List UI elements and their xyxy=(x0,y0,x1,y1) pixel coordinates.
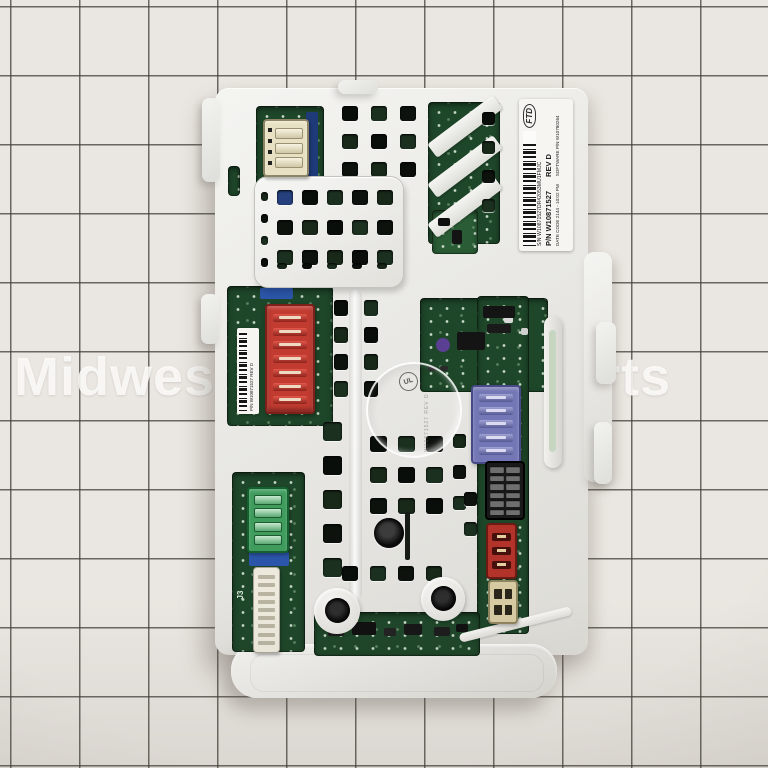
smd-component xyxy=(434,627,450,636)
serial-number-text: S/N W10871527DR42053MU1FMJC xyxy=(537,104,543,246)
vent-hole xyxy=(370,566,386,581)
vent-hole xyxy=(453,465,466,479)
barcode xyxy=(523,131,536,246)
vent-hole xyxy=(371,106,387,121)
connector-pin xyxy=(506,475,520,482)
vent-hole xyxy=(464,492,477,506)
part-number-text: P/N W10871527 xyxy=(544,191,553,246)
vent-hole xyxy=(398,467,415,483)
vent-hole xyxy=(426,467,443,483)
connector-slot xyxy=(492,533,511,541)
vent-hole xyxy=(323,490,342,509)
connector-slot xyxy=(479,447,513,455)
connector-slot xyxy=(494,589,512,599)
connector-slot xyxy=(258,641,275,645)
connector-slot xyxy=(254,522,282,532)
vent-hole xyxy=(364,327,378,343)
ic-chip xyxy=(483,306,515,318)
connector-slot xyxy=(258,600,275,604)
barcode-bar xyxy=(523,240,536,242)
connector-slot xyxy=(258,624,275,628)
barcode-bar xyxy=(523,228,536,230)
barcode-bar xyxy=(523,204,536,206)
barcode-bar xyxy=(239,398,247,399)
product-photo: Midwest Appliance Parts UL W10871527 REV xyxy=(0,0,768,768)
revision-text: REV D xyxy=(544,154,553,177)
vent-hole xyxy=(464,522,477,536)
connector-top-left-cream xyxy=(263,119,309,177)
barcode xyxy=(239,331,247,411)
molded-ridge xyxy=(349,290,362,600)
software-pn-text: SOFTWARE P/N W10780264 xyxy=(555,115,560,176)
vent-hole xyxy=(302,220,318,235)
vent-hole xyxy=(261,236,268,245)
barcode-bar xyxy=(239,376,247,379)
barcode-bar xyxy=(523,192,536,194)
barcode-bar xyxy=(239,374,247,375)
smd-component xyxy=(487,324,511,333)
connector-slot xyxy=(273,383,307,391)
barcode-bar xyxy=(239,393,247,395)
vent-hole xyxy=(364,354,378,370)
vent-hole xyxy=(334,354,348,370)
barcode-bar xyxy=(239,388,247,391)
connector-black-dual-row xyxy=(485,461,525,520)
barcode-bar xyxy=(523,245,536,246)
barcode-bar xyxy=(523,197,536,198)
smd-component xyxy=(456,624,468,632)
connector-slot xyxy=(254,495,282,505)
connector-pin xyxy=(506,500,520,507)
vent-hole xyxy=(352,220,368,235)
connector-slot xyxy=(492,561,511,569)
barcode-bar xyxy=(523,151,536,154)
vent-hole xyxy=(364,300,378,316)
connector-slot xyxy=(275,143,303,154)
vent-hole xyxy=(327,190,343,205)
barcode-bar xyxy=(239,364,247,367)
barcode-bar xyxy=(239,345,247,347)
flange-outline xyxy=(250,654,544,692)
vent-hole xyxy=(327,220,343,235)
barcode-bar xyxy=(239,340,247,343)
barcode-bar xyxy=(523,161,536,162)
connector-slot xyxy=(273,328,307,336)
vent-hole xyxy=(370,467,387,483)
vent-hole xyxy=(400,162,416,177)
mounting-clip xyxy=(594,422,612,484)
vent-hole xyxy=(453,434,466,448)
smd-component xyxy=(404,624,422,635)
connector-red-main xyxy=(265,304,315,414)
vent-hole xyxy=(323,524,342,543)
wire-channel-strip xyxy=(549,330,556,452)
smd-component xyxy=(452,230,462,244)
vent-hole xyxy=(327,263,337,269)
vent-hole xyxy=(371,134,387,149)
blue-component xyxy=(260,288,293,299)
barcode-bar xyxy=(523,144,536,146)
ic-chip xyxy=(457,332,485,350)
vent-hole xyxy=(261,258,268,267)
barcode-bar xyxy=(523,163,536,166)
barcode-bar xyxy=(239,350,247,351)
connector-slot xyxy=(273,369,307,377)
vent-hole xyxy=(302,190,318,205)
vent-hole xyxy=(482,112,495,125)
connector-slot xyxy=(258,616,275,620)
connector-pin xyxy=(490,466,504,473)
connector-slot xyxy=(479,420,513,428)
barcode-bar xyxy=(523,149,536,150)
connector-slot xyxy=(258,575,275,579)
smd-component xyxy=(521,328,528,335)
vent-hole xyxy=(398,566,414,581)
screw-hole xyxy=(325,598,350,623)
vent-hole xyxy=(482,141,495,154)
barcode-bar xyxy=(523,199,536,202)
vent-hole xyxy=(377,220,393,235)
vent-hole xyxy=(342,162,358,177)
pcb-label-text: P/N W10871527 REV D xyxy=(249,331,254,411)
connector-slot xyxy=(258,608,275,612)
barcode-bar xyxy=(239,352,247,355)
mounting-clip xyxy=(596,322,616,384)
barcode-bar xyxy=(239,405,247,407)
vent-hole xyxy=(400,134,416,149)
vent-hole xyxy=(302,263,312,269)
connector-slot xyxy=(275,157,303,168)
connector-pin xyxy=(490,500,504,507)
vent-hole xyxy=(323,422,342,441)
connector-slot xyxy=(258,592,275,596)
vent-hole xyxy=(261,192,268,201)
vent-hole xyxy=(482,170,495,183)
connector-slot xyxy=(479,434,513,442)
connector-slot xyxy=(494,605,512,615)
barcode-bar xyxy=(239,400,247,403)
vent-hole xyxy=(400,106,416,121)
connector-pin xyxy=(506,509,520,516)
vent-hole xyxy=(371,162,387,177)
vent-hole xyxy=(334,381,348,397)
barcode-bar xyxy=(523,223,536,226)
barcode-bar xyxy=(523,211,536,214)
silkscreen-j3: J3 xyxy=(229,588,251,602)
vent-hole xyxy=(261,214,268,223)
vent-hole xyxy=(342,134,358,149)
connector-tan-small xyxy=(488,580,518,624)
mounting-tab xyxy=(201,294,219,344)
connector-purple xyxy=(471,385,521,464)
vent-hole xyxy=(342,566,358,581)
barcode-bar xyxy=(239,362,247,363)
vent-hole xyxy=(323,558,342,577)
connector-slot xyxy=(479,394,513,402)
barcode-bar xyxy=(523,235,536,238)
blue-component xyxy=(249,552,289,566)
barcode-bar xyxy=(523,185,536,186)
connector-slot xyxy=(275,128,303,139)
barcode-bar xyxy=(239,338,247,339)
vent-slot xyxy=(405,512,410,560)
connector-slot xyxy=(273,341,307,349)
barcode-bar xyxy=(239,333,247,335)
vent-hole xyxy=(377,190,393,205)
connector-slot xyxy=(258,583,275,587)
vent-hole xyxy=(277,220,293,235)
molded-part-number: W10871527 REV D xyxy=(420,366,434,452)
connector-green xyxy=(247,487,289,553)
vent-hole xyxy=(342,106,358,121)
vent-hole xyxy=(334,300,348,316)
mounting-tab xyxy=(202,98,220,182)
barcode-bar xyxy=(523,180,536,182)
connector-slot xyxy=(254,508,282,518)
purple-component xyxy=(436,338,450,352)
vent-hole xyxy=(377,263,387,269)
barcode-bar xyxy=(523,156,536,158)
connector-pin xyxy=(506,483,520,490)
barcode-bar xyxy=(523,233,536,234)
pcb-notch xyxy=(228,166,240,196)
barcode-bar xyxy=(523,168,536,170)
date-code-text: DATE CODE 2144 - 10:02 PM xyxy=(555,184,560,246)
barcode-bar xyxy=(523,175,536,178)
connector-slot xyxy=(479,407,513,415)
vent-hole xyxy=(323,456,342,475)
vent-hole xyxy=(277,263,287,269)
barcode-bar xyxy=(239,410,247,411)
barcode-bar xyxy=(523,173,536,174)
vent-hole xyxy=(334,327,348,343)
vent-hole xyxy=(352,263,362,269)
connector-pin xyxy=(506,466,520,473)
connector-slot xyxy=(258,633,275,637)
barcode-bar xyxy=(239,369,247,371)
barcode-bar xyxy=(523,187,536,190)
connector-pin xyxy=(490,475,504,482)
manufacturer-logo: FTD xyxy=(523,104,536,128)
smd-component xyxy=(438,218,450,226)
connector-pin xyxy=(490,492,504,499)
vent-hole xyxy=(482,199,495,212)
top-tab xyxy=(338,80,378,94)
pcb-barcode-label: P/N W10871527 REV D xyxy=(237,328,259,414)
barcode-bar xyxy=(523,221,536,222)
connector-slot xyxy=(492,547,511,555)
connector-slot xyxy=(273,314,307,322)
connector-pin xyxy=(490,509,504,516)
grommet-component xyxy=(374,518,404,548)
serial-number-label: FTD S/N W10871527DR42053MU1FMJC P/N W108… xyxy=(519,99,573,251)
vent-hole xyxy=(352,190,368,205)
smd-component xyxy=(384,628,396,636)
barcode-bar xyxy=(239,381,247,383)
connector-slot xyxy=(254,535,282,545)
connector-pin xyxy=(490,483,504,490)
barcode-bar xyxy=(523,216,536,218)
vent-hole xyxy=(277,190,293,205)
connector-pin xyxy=(506,492,520,499)
barcode-bar xyxy=(523,209,536,210)
connector-white-header xyxy=(253,567,280,653)
vent-hole xyxy=(370,498,387,514)
barcode-bar xyxy=(239,386,247,387)
connector-slot xyxy=(273,396,307,404)
barcode-bar xyxy=(239,357,247,359)
vent-hole xyxy=(426,498,443,514)
connector-slot xyxy=(273,355,307,363)
screw-hole xyxy=(431,586,456,611)
connector-red-small xyxy=(486,523,517,579)
